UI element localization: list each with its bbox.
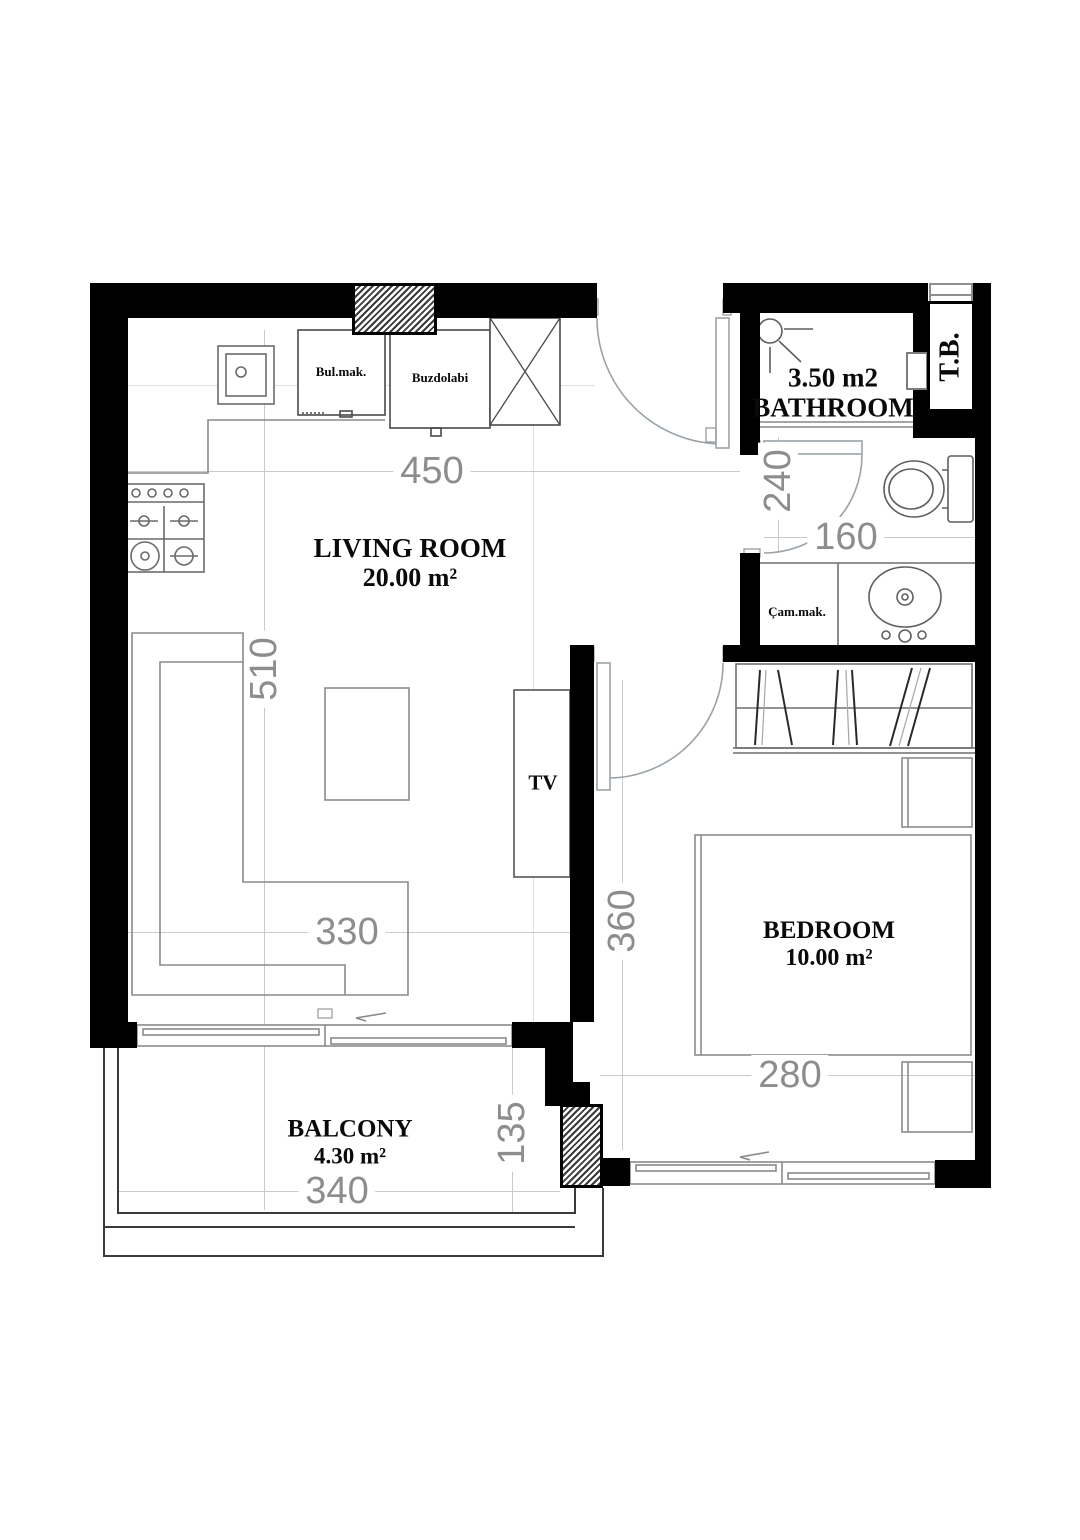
bedroom-window — [630, 1152, 935, 1184]
stove — [124, 484, 204, 572]
dim-hall-width: 160 — [807, 517, 884, 557]
bedroom-label: BEDROOM 10.00 m² — [763, 917, 895, 971]
dim-balcony-width: 340 — [298, 1171, 375, 1211]
kitchen-sink — [218, 346, 274, 404]
shower-partition — [760, 422, 913, 427]
balcony-name: BALCONY — [287, 1116, 412, 1144]
wardrobe — [733, 664, 975, 753]
living-room-name: LIVING ROOM — [314, 534, 507, 564]
fridge-label: Buzdolabi — [412, 370, 468, 386]
wall-left — [90, 283, 128, 1048]
wall-column-cap — [562, 1082, 590, 1104]
bathroom-area: 3.50 m2 — [752, 363, 914, 393]
column-top — [352, 283, 437, 335]
dim-living-width: 450 — [393, 451, 470, 491]
wall-bath-left-lower — [740, 553, 760, 660]
bedroom-name: BEDROOM — [763, 917, 895, 945]
balcony-sliding-door — [137, 1009, 512, 1046]
living-room-area: 20.00 m² — [314, 564, 507, 593]
living-room-label: LIVING ROOM 20.00 m² — [314, 534, 507, 592]
dim-bedroom-width: 280 — [751, 1055, 828, 1095]
entry-door — [597, 318, 729, 448]
nightstand-bottom — [902, 1062, 972, 1132]
nightstand-top — [902, 758, 972, 827]
door-jambs — [585, 299, 760, 661]
kitchen-counter — [128, 420, 385, 473]
wall-slider-block-left — [90, 1022, 137, 1048]
wall-top-left — [90, 283, 597, 318]
toilet — [884, 456, 973, 522]
dishwasher-label: Bul.mak. — [316, 364, 367, 380]
balcony-label: BALCONY 4.30 m² — [287, 1116, 412, 1169]
wall-top-middle — [723, 283, 928, 313]
wall-column-right-block — [603, 1158, 630, 1186]
bedroom-area: 10.00 m² — [763, 945, 895, 971]
wall-bedroom-top — [723, 645, 991, 662]
wall-divider — [570, 645, 594, 1022]
wall-bedroom-corner — [935, 1160, 991, 1188]
wall-shaft-bottom — [913, 412, 991, 438]
shaft-label: T.B. — [935, 332, 967, 381]
dim-living-depth: 510 — [244, 630, 284, 707]
balcony-area: 4.30 m² — [287, 1143, 412, 1168]
bathroom-label: 3.50 m2 BATHROOM — [752, 363, 914, 422]
tv-label: TV — [528, 771, 557, 796]
coffee-table — [325, 688, 409, 800]
dim-balcony-depth: 135 — [492, 1094, 532, 1171]
dim-sofa-span: 330 — [308, 912, 385, 952]
column-balcony — [560, 1104, 603, 1188]
dim-bedroom-depth: 360 — [602, 882, 642, 959]
entry-cabinet — [490, 318, 560, 425]
washbasin — [869, 567, 941, 642]
wall-slider-block-right — [512, 1022, 573, 1048]
washer-label: Çam.mak. — [768, 604, 826, 620]
dim-hall-depth: 240 — [758, 442, 798, 519]
bedroom-door — [597, 663, 723, 790]
bathroom-name: BATHROOM — [752, 393, 914, 423]
technical-shaft: T.B. — [927, 301, 975, 412]
floor-plan: T.B. LIVING ROOM 20.00 m² BEDROOM 10.00 … — [0, 0, 1080, 1540]
